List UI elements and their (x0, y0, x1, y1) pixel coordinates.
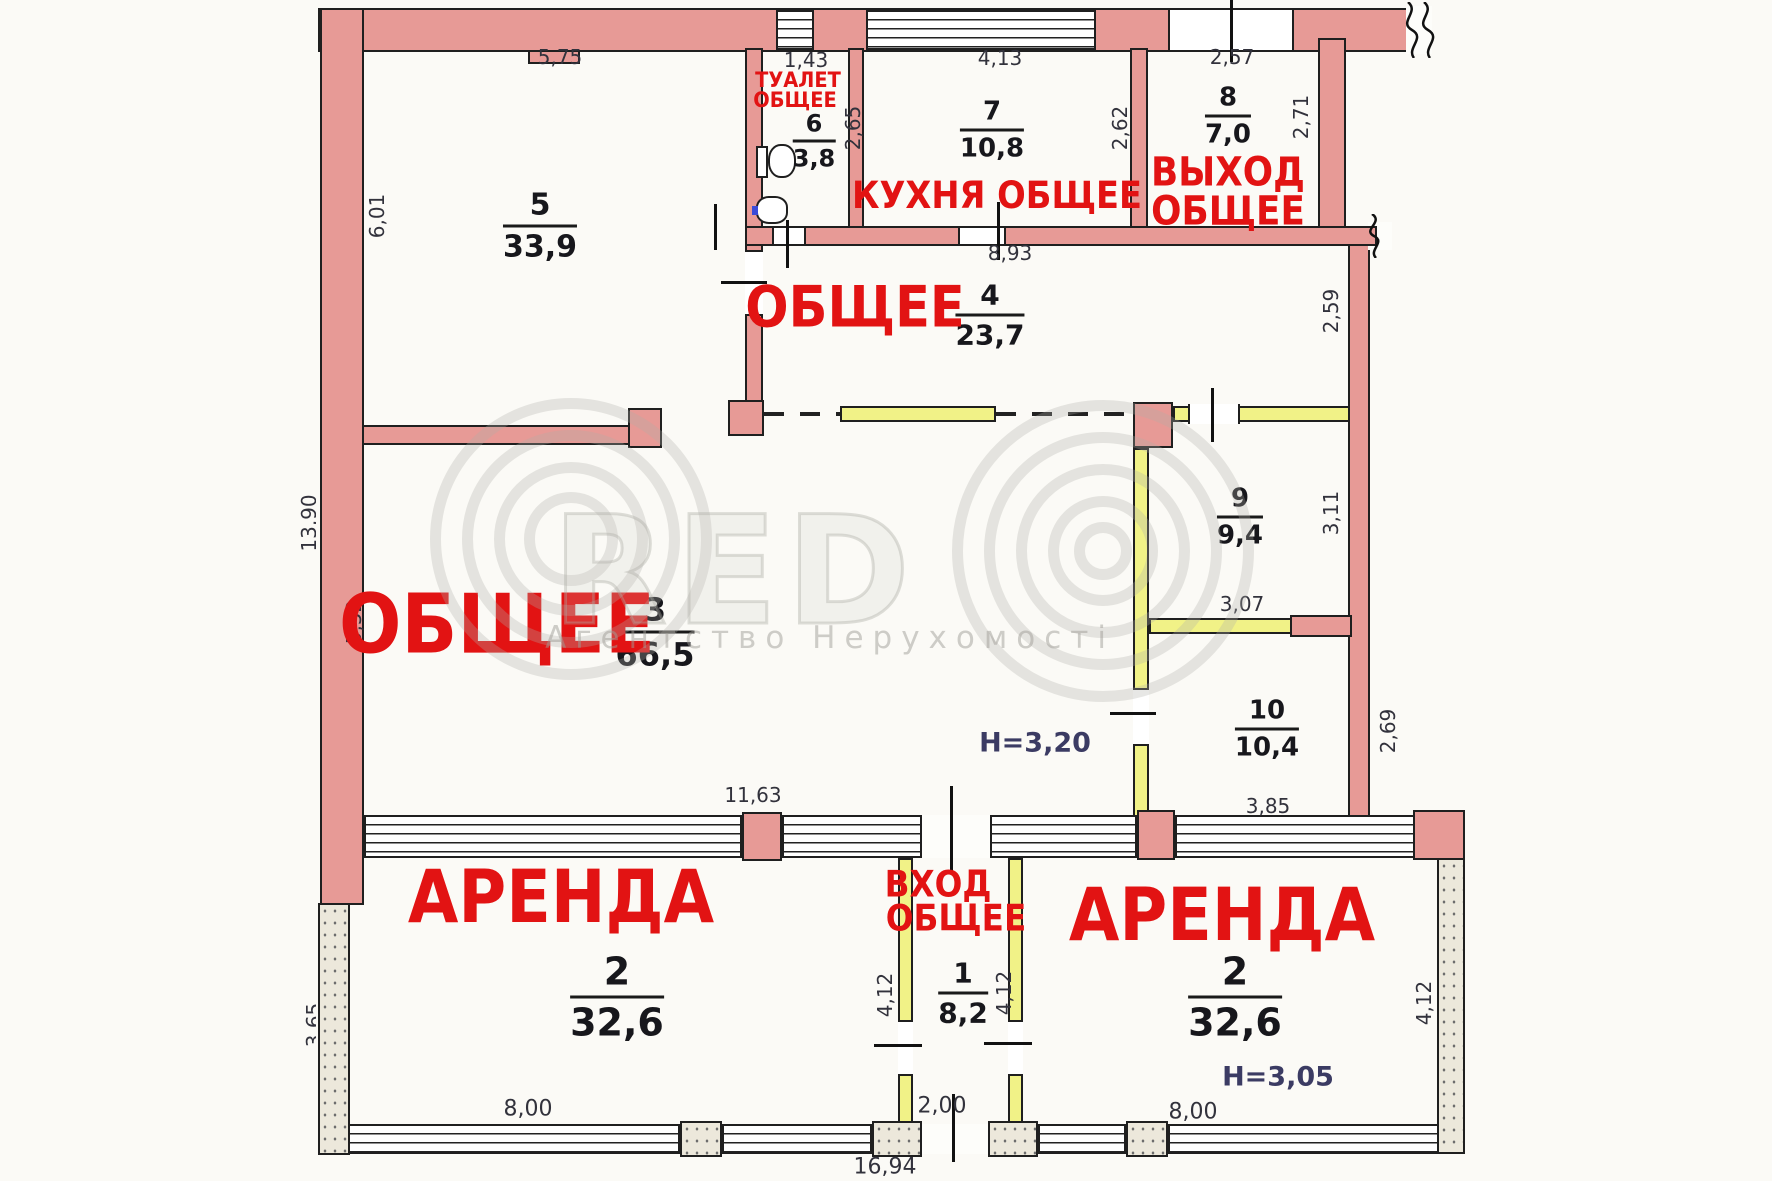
pier (1137, 810, 1175, 860)
dim-label: 8,00 (1169, 1100, 1218, 1125)
watermark-ring (984, 432, 1222, 670)
door-room1-right (1008, 1020, 1023, 1076)
partition-room9-bottom (1149, 618, 1292, 634)
dim-label: 4,12 (992, 971, 1016, 1016)
dim-label: 6,01 (365, 194, 389, 239)
room8-label-line2: ОБЩЕЕ (1151, 189, 1305, 235)
window-band-bottom (722, 1124, 872, 1154)
window-band-bottom (1038, 1124, 1126, 1154)
watermark-ring (1016, 464, 1190, 638)
pier-stippled (1126, 1121, 1168, 1157)
door-toilet (772, 228, 806, 244)
wall-right-upper (1318, 38, 1346, 230)
wall-room5-room3 (362, 425, 630, 445)
dim-label: 4,13 (978, 46, 1023, 70)
partition-room9-left (1133, 448, 1149, 818)
room6-area: 63,8 (793, 110, 836, 173)
dimension-tick (984, 1042, 1032, 1045)
door-room9-top (1188, 404, 1240, 424)
dim-label: 2,62 (1108, 106, 1132, 151)
dim-label: 8,00 (504, 1097, 553, 1122)
dim-label: 3,85 (1246, 794, 1291, 818)
dim-label: 16,94 (854, 1155, 917, 1180)
window-band-mid (990, 815, 1137, 858)
dashed-boundary (764, 412, 840, 416)
window-band-mid (782, 815, 922, 858)
dim-label: 8,93 (988, 241, 1033, 265)
watermark-ring (524, 492, 618, 586)
dim-label: 2,59 (1319, 289, 1343, 334)
pier (728, 400, 764, 436)
room4-label: ОБЩЕЕ (745, 274, 965, 340)
dim-label: 2,00 (918, 1094, 967, 1119)
room2-right-area: 232,6 (1188, 950, 1282, 1045)
dimension-tick (950, 786, 953, 872)
dim-label: 2,57 (1210, 45, 1255, 69)
window-top-small (776, 10, 814, 50)
window-top-kitchen (866, 10, 1096, 50)
opening-entry-passage (922, 815, 990, 858)
pier-stippled (872, 1121, 922, 1157)
toilet-icon (756, 146, 768, 178)
dim-label: 3,11 (1319, 491, 1343, 536)
room2-right-label: АРЕНДА (1069, 874, 1375, 958)
window-band-bottom (348, 1124, 680, 1154)
dimension-tick (1211, 388, 1214, 442)
dim-label: 2,71 (1289, 95, 1313, 140)
ceiling-height-label: H=3,20 (979, 728, 1091, 759)
room1-label-line2: ОБЩЕЕ (886, 896, 1026, 939)
dim-label: 11,63 (724, 783, 781, 807)
window-band-mid (364, 815, 742, 858)
window-band-mid (1175, 815, 1415, 858)
wall-right-stippled (1437, 858, 1465, 1154)
wall-room9-bottom-pink (1290, 615, 1352, 637)
dim-label: 4,12 (873, 973, 897, 1018)
ceiling-height-label: H=3,05 (1222, 1062, 1334, 1093)
room9-area: 99,4 (1217, 484, 1263, 551)
dim-label: 2,69 (1376, 709, 1400, 754)
partition-yellow (840, 406, 996, 422)
watermark-ring (1074, 522, 1132, 580)
dim-label: 3,07 (1220, 592, 1265, 616)
room3-label: ОБЩЕЕ (339, 576, 655, 672)
room2-left-area: 232,6 (570, 950, 664, 1045)
dim-label-clipped: 3,65 (300, 975, 316, 1075)
dimension-tick (1110, 712, 1156, 715)
room4-area: 423,7 (955, 279, 1024, 352)
dim-label: 4,12 (1412, 981, 1436, 1026)
dimension-tick (786, 220, 789, 268)
room7-area: 710,8 (960, 97, 1024, 164)
room1-area: 18,2 (938, 957, 988, 1030)
wall-break-icon (1402, 2, 1438, 58)
window-band-bottom (1168, 1124, 1439, 1154)
room10-area: 1010,4 (1235, 696, 1299, 763)
wall-left-stippled (318, 903, 350, 1155)
watermark-ring (952, 400, 1254, 702)
dim-label: 5,75 (538, 45, 583, 69)
dim-label: 2,65 (841, 106, 865, 151)
dashed-boundary (996, 412, 1133, 416)
pier-stippled (988, 1121, 1038, 1157)
room8-area: 87,0 (1205, 83, 1251, 150)
pier (1133, 402, 1173, 448)
wall-left-outer (320, 8, 364, 905)
room7-label: КУХНЯ ОБЩЕЕ (852, 173, 1142, 217)
wall-break-icon (1362, 214, 1396, 258)
pier-stippled (680, 1121, 722, 1157)
door-room1-left (898, 1020, 913, 1076)
sink-tap-icon (752, 206, 758, 215)
dimension-tick (714, 204, 717, 250)
room5-area: 533,9 (503, 188, 577, 265)
wall-right-mid (1348, 230, 1370, 818)
pier (742, 812, 782, 861)
room6-label-line2: ОБЩЕЕ (753, 87, 836, 112)
sink-icon (756, 196, 788, 224)
dimension-tick (874, 1044, 922, 1047)
floor-plan-scan: RED Агентство Нерухомості (0, 0, 1772, 1181)
room2-left-label: АРЕНДА (408, 856, 714, 940)
pier (628, 408, 662, 448)
dim-label-clipped: 13,90 (300, 468, 316, 578)
opening-main-entrance (922, 1124, 988, 1154)
pier (1413, 810, 1465, 860)
door-room10 (1133, 688, 1149, 746)
